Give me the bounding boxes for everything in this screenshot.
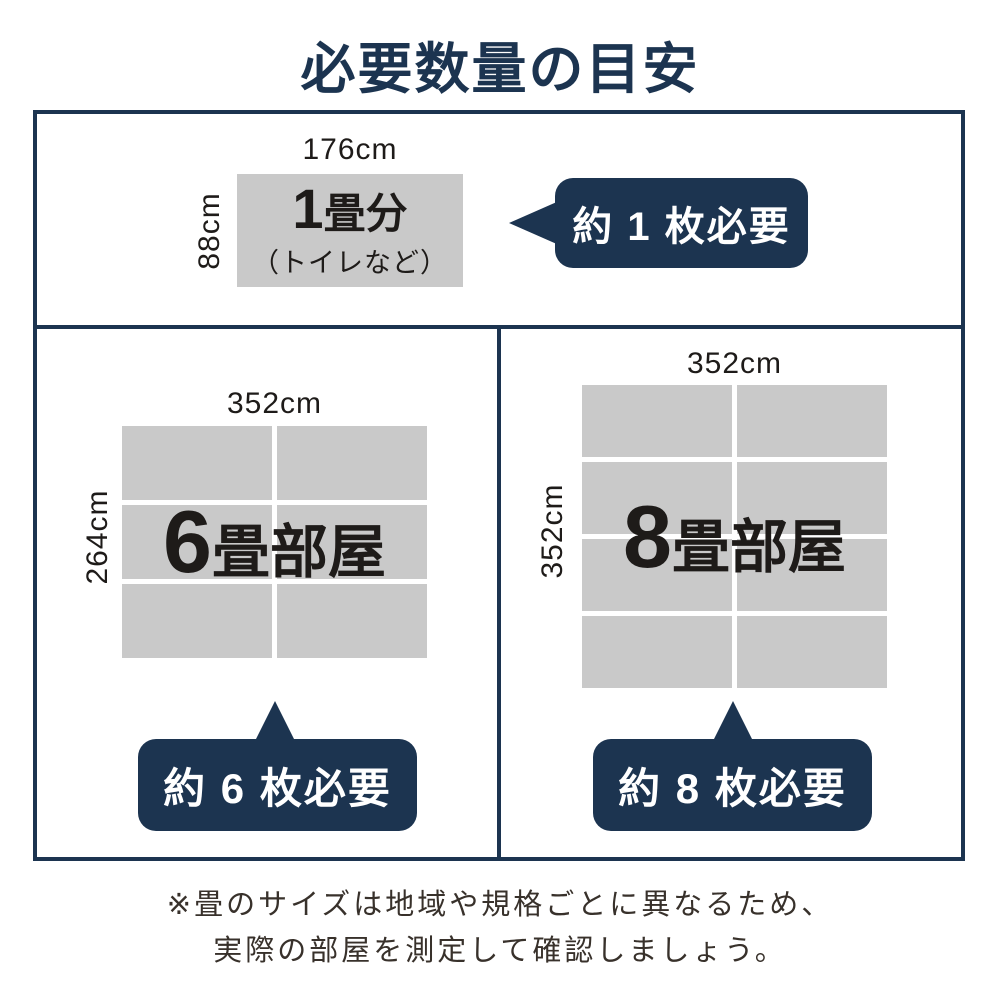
page-title: 必要数量の目安 [0, 24, 1000, 104]
tatami-cell [582, 539, 732, 611]
tatami-cell [582, 616, 732, 688]
single-tatami-suffix: 畳分 [324, 193, 408, 235]
tatami-cell [737, 539, 887, 611]
single-height-label: 88cm [193, 192, 227, 269]
single-width-label: 176cm [237, 133, 463, 167]
tatami-cell [122, 426, 272, 500]
room6-width-label: 352cm [122, 387, 427, 421]
tatami-cell [122, 505, 272, 579]
tatami-cell [277, 505, 427, 579]
bubble-arrow-left-icon [509, 201, 559, 245]
single-tatami-name: 1畳分 [292, 181, 407, 237]
single-tatami-rect: 1畳分 （トイレなど） [237, 174, 463, 287]
single-tatami-note: （トイレなど） [252, 241, 448, 280]
room6-tatami-grid [122, 426, 427, 658]
footer-note: ※畳のサイズは地域や規格ごとに異なるため、 実際の部屋を測定して確認しましょう。 [0, 882, 1000, 974]
tatami-cell [277, 426, 427, 500]
single-tatami-number: 1 [292, 181, 323, 237]
bubble-single: 約 1 枚必要 [555, 178, 808, 268]
footer-note-line2: 実際の部屋を測定して確認しましょう。 [0, 928, 1000, 974]
bubble-room8: 約 8 枚必要 [593, 739, 872, 831]
room8-height-label: 352cm [536, 483, 570, 578]
divider-vertical [497, 325, 501, 861]
room6-height-label: 264cm [81, 489, 115, 584]
bubble-arrow-up-icon [255, 701, 295, 741]
footer-note-line1: ※畳のサイズは地域や規格ごとに異なるため、 [0, 882, 1000, 928]
tatami-cell [737, 462, 887, 534]
bubble-arrow-up-icon [713, 701, 753, 741]
room8-width-label: 352cm [582, 347, 887, 381]
tatami-cell [582, 462, 732, 534]
room8-tatami-grid [582, 385, 887, 688]
tatami-cell [582, 385, 732, 457]
tatami-cell [122, 584, 272, 658]
bubble-room6: 約 6 枚必要 [138, 739, 417, 831]
tatami-cell [277, 584, 427, 658]
infographic: 必要数量の目安 176cm 88cm 1畳分 （トイレなど） 約 1 枚必要 3… [0, 0, 1000, 1000]
tatami-cell [737, 385, 887, 457]
tatami-cell [737, 616, 887, 688]
